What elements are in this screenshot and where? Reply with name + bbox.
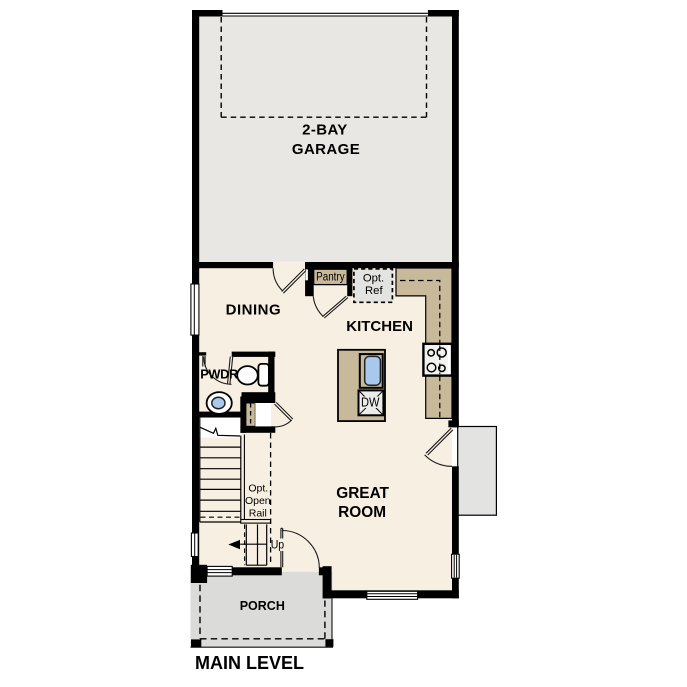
- svg-text:KITCHEN: KITCHEN: [346, 318, 413, 335]
- svg-text:Opt.: Opt.: [248, 482, 268, 494]
- svg-text:Open: Open: [245, 495, 271, 507]
- svg-text:PWDR: PWDR: [200, 366, 238, 381]
- svg-text:Pantry: Pantry: [316, 272, 345, 284]
- svg-text:2-BAY: 2-BAY: [302, 121, 348, 138]
- svg-text:MAIN LEVEL: MAIN LEVEL: [195, 653, 304, 673]
- svg-text:Up: Up: [271, 537, 285, 551]
- svg-text:DW: DW: [361, 395, 380, 410]
- svg-text:DINING: DINING: [226, 301, 282, 318]
- svg-text:Ref: Ref: [365, 285, 383, 297]
- svg-text:Rail: Rail: [249, 508, 267, 520]
- svg-text:GREAT: GREAT: [336, 485, 389, 502]
- svg-text:PORCH: PORCH: [240, 599, 285, 613]
- svg-text:GARAGE: GARAGE: [292, 141, 360, 158]
- svg-text:ROOM: ROOM: [338, 504, 386, 521]
- svg-text:Opt.: Opt.: [363, 272, 384, 284]
